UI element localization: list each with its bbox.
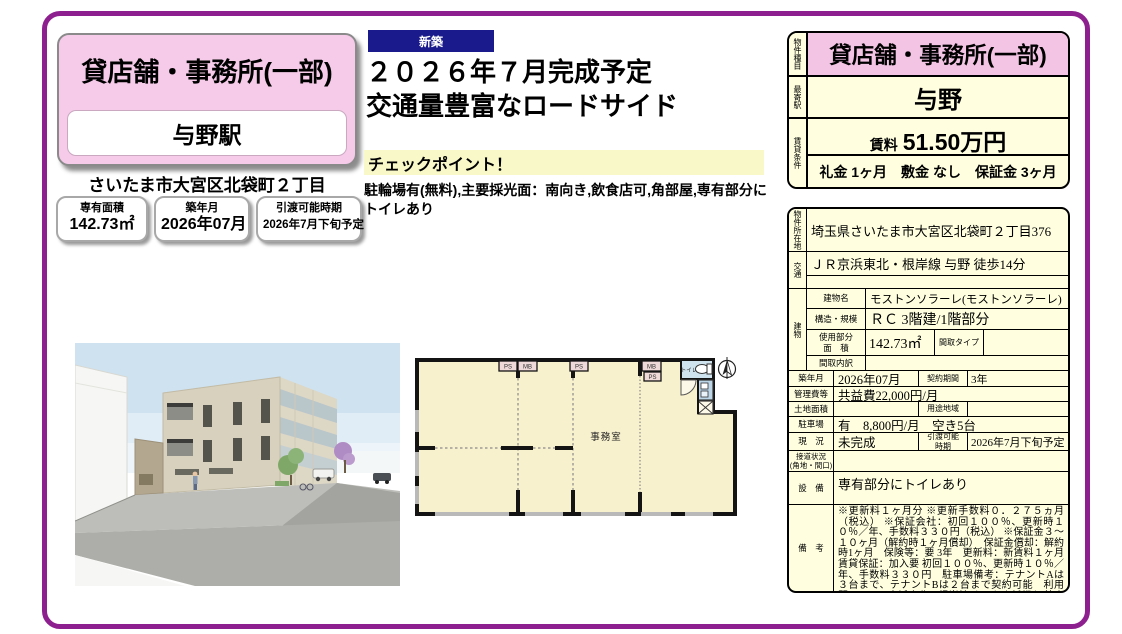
building-name-label: 建物名: [807, 289, 866, 308]
layout-detail-label: 間取内訳: [807, 356, 866, 370]
summary-row-terms: 賃貸条件 賃料 51.50万円 礼金 1ヶ月 敷金 なし 保証金 3ヶ月: [789, 119, 1068, 187]
rent-cell: 賃料 51.50万円: [808, 119, 1068, 156]
notes-value: ※更新料１ヶ月分 ※更新手数料０．２７５ヵ月（税込） ※保証会社：初回１００％、…: [834, 505, 1068, 591]
building-render-image: [75, 343, 400, 586]
layout-type-value: [984, 330, 1070, 355]
property-address: さいたま市大宮区北袋町２丁目: [47, 171, 367, 196]
summary-row-type: 物件種目 貸店舗・事務所(一部): [789, 33, 1068, 77]
structure-value: ＲＣ 3階建/1階部分: [866, 309, 1070, 329]
floor-plan-image: PS MB PS MB PS トイレ 事務室: [413, 352, 745, 524]
row-road: 接道状況 (角地・間口): [789, 451, 1068, 472]
delivery-value: 2026年7月下旬予定: [968, 433, 1068, 450]
equipment-label: 設 備: [789, 472, 834, 504]
land-label: 土地面積: [789, 402, 834, 416]
land-value: [834, 402, 918, 416]
row-building: 建物 建物名 モストンソラーレ(モストンソラーレ) A 構造・規模 ＲＣ 3階建…: [789, 289, 1068, 371]
built-label: 築年月: [789, 371, 834, 386]
toilet-label: トイレ: [681, 368, 698, 374]
property-type-title: 貸店舗・事務所(一部): [59, 52, 355, 89]
status-value: 未完成: [834, 433, 918, 450]
delivery-label: 引渡可能 時期: [918, 433, 968, 450]
notes-label: 備 考: [789, 505, 834, 591]
rent-label: 賃料: [870, 135, 898, 155]
station-vertical-label: 最寄駅: [789, 77, 808, 117]
ps-label-1: PS: [504, 365, 512, 371]
row-location: 物件所在地 埼玉県さいたま市大宮区北袋町２丁目376: [789, 209, 1068, 252]
headline-line1: ２０２６年７月完成予定: [366, 52, 652, 89]
pill-built-date-value: 2026年07月: [161, 215, 243, 236]
built-value: 2026年07月: [834, 371, 918, 386]
pill-built-date-label: 築年月: [161, 202, 243, 215]
road-value: [834, 451, 1068, 471]
access-value: ＪＲ京浜東北・根岸線 与野 徒歩14分: [807, 252, 1068, 276]
building-label: 建物: [789, 289, 807, 370]
area-value: 142.73㎡: [866, 330, 934, 355]
mgmt-value: 共益費22,000円/月: [834, 387, 1068, 401]
property-type-vertical-label: 物件種目: [789, 33, 808, 75]
north-arrow-icon: [719, 357, 736, 379]
checkpoint-body: 駐輪場有(無料),主要採光面：南向き,飲食店可,角部屋,専有部分にトイレあり: [364, 181, 770, 219]
zoning-value: [968, 402, 1068, 416]
station-value: 与野: [808, 77, 1068, 117]
property-type-card: 貸店舗・事務所(一部) 与野駅: [57, 33, 357, 166]
spec-pills: 専有面積 142.73㎡ 築年月 2026年07月 引渡可能時期 2026年7月…: [56, 196, 362, 242]
pill-floor-area-value: 142.73㎡: [63, 215, 141, 236]
ps-label-3: PS: [648, 375, 656, 381]
row-access: 交通 ＪＲ京浜東北・根岸線 与野 徒歩14分: [789, 252, 1068, 289]
property-flyer-page: 貸店舗・事務所(一部) 与野駅 さいたま市大宮区北袋町２丁目 専有面積 142.…: [0, 0, 1122, 634]
structure-label: 構造・規模: [807, 309, 866, 329]
row-parking: 駐車場 有 8,800円/月 空き5台: [789, 417, 1068, 433]
mb-label-1: MB: [523, 365, 532, 371]
rent-value: 51.50万円: [903, 123, 1007, 157]
row-status: 現 況 未完成 引渡可能 時期 2026年7月下旬予定: [789, 433, 1068, 451]
new-construction-badge: 新築: [368, 30, 494, 52]
ps-label-2: PS: [575, 365, 583, 371]
row-notes: 備 考 ※更新料１ヶ月分 ※更新手数料０．２７５ヵ月（税込） ※保証会社：初回１…: [789, 505, 1068, 591]
area-label: 使用部分 面 積: [807, 330, 866, 355]
summary-table: 物件種目 貸店舗・事務所(一部) 最寄駅 与野 賃貸条件 賃料 51.50万円 …: [787, 31, 1070, 189]
location-label: 物件所在地: [789, 209, 807, 251]
pill-delivery-date: 引渡可能時期 2026年7月下旬予定: [256, 196, 362, 242]
row-land-area: 土地面積 用途地域: [789, 402, 1068, 417]
checkpoint-title: チェックポイント！: [364, 150, 764, 175]
row-management-fee: 管理費等 共益費22,000円/月: [789, 387, 1068, 402]
location-value: 埼玉県さいたま市大宮区北袋町２丁目376: [807, 209, 1068, 251]
equipment-value: 専有部分にトイレあり: [834, 472, 1068, 504]
zoning-label: 用途地域: [918, 402, 968, 416]
pill-built-date: 築年月 2026年07月: [154, 196, 250, 242]
status-label: 現 況: [789, 433, 834, 450]
summary-row-station: 最寄駅 与野: [789, 77, 1068, 119]
access-value-2: [807, 276, 1068, 288]
office-room-label: 事務室: [590, 431, 622, 443]
pill-delivery-date-value: 2026年7月下旬予定: [263, 218, 355, 233]
contract-value: 3年: [968, 371, 1068, 386]
mb-label-2: MB: [647, 365, 656, 371]
access-label: 交通: [789, 252, 807, 288]
mgmt-label: 管理費等: [789, 387, 834, 401]
row-equipment: 設 備 専有部分にトイレあり: [789, 472, 1068, 505]
pill-floor-area-label: 専有面積: [63, 202, 141, 215]
pill-floor-area: 専有面積 142.73㎡: [56, 196, 148, 242]
property-type-value: 貸店舗・事務所(一部): [808, 33, 1068, 75]
parking-label: 駐車場: [789, 417, 834, 432]
headline-line2: 交通量豊富なロードサイド: [366, 86, 678, 123]
road-label: 接道状況 (角地・間口): [789, 451, 834, 471]
pill-delivery-date-label: 引渡可能時期: [263, 202, 355, 215]
contract-label: 契約期間: [918, 371, 968, 386]
row-built: 築年月 2026年07月 契約期間 3年: [789, 371, 1068, 387]
building-name-value: モストンソラーレ(モストンソラーレ) A: [866, 289, 1070, 308]
terms-vertical-label: 賃貸条件: [789, 119, 808, 187]
detail-table: 物件所在地 埼玉県さいたま市大宮区北袋町２丁目376 交通 ＪＲ京浜東北・根岸線…: [787, 207, 1070, 593]
layout-type-label: 間取タイプ: [934, 330, 984, 355]
parking-value: 有 8,800円/月 空き5台: [834, 417, 1068, 432]
station-name: 与野駅: [173, 116, 242, 150]
layout-detail-value: [866, 356, 1070, 370]
terms-value: 礼金 1ヶ月 敷金 なし 保証金 3ヶ月: [808, 156, 1068, 187]
station-name-box: 与野駅: [67, 110, 347, 156]
